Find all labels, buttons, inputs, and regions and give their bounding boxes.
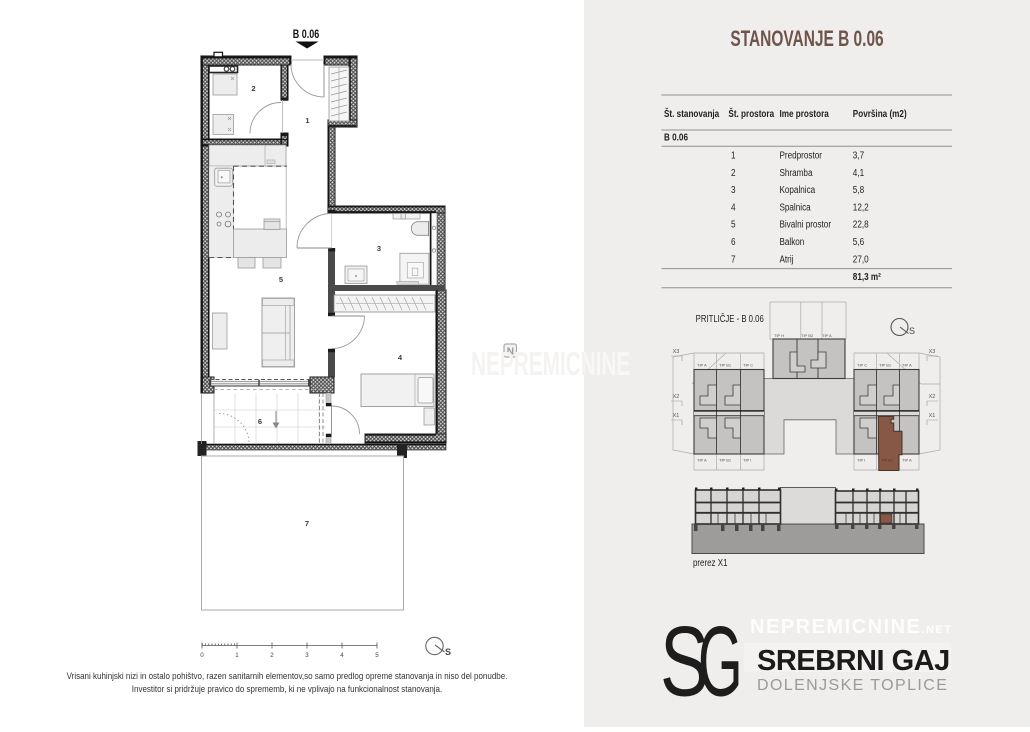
- svg-text:X2: X2: [673, 394, 680, 400]
- svg-text:TIP C: TIP C: [743, 363, 753, 368]
- svg-text:S: S: [909, 326, 915, 336]
- svg-text:Vrisani kuhinjski nizi in osta: Vrisani kuhinjski nizi in ostalo pohištv…: [67, 671, 508, 681]
- svg-text:3,7: 3,7: [853, 150, 864, 161]
- svg-text:TIP A: TIP A: [902, 458, 912, 463]
- svg-text:2: 2: [270, 652, 274, 659]
- svg-text:TIP A: TIP A: [902, 363, 912, 368]
- svg-text:Atrij: Atrij: [779, 254, 793, 265]
- svg-text:1: 1: [731, 150, 736, 161]
- svg-text:G: G: [698, 606, 743, 717]
- svg-text:6: 6: [731, 236, 736, 247]
- svg-text:TIP A: TIP A: [822, 333, 832, 338]
- svg-text:TIP H: TIP H: [774, 333, 784, 338]
- svg-text:Bivalni prostor: Bivalni prostor: [779, 219, 831, 230]
- svg-text:PRITLIČJE - B 0.06: PRITLIČJE - B 0.06: [696, 313, 764, 324]
- svg-text:TIP B1: TIP B1: [881, 458, 894, 463]
- svg-text:X3: X3: [673, 349, 680, 355]
- svg-text:Predprostor: Predprostor: [779, 150, 822, 161]
- svg-text:27,0: 27,0: [853, 254, 869, 265]
- svg-text:DOLENJSKE TOPLICE: DOLENJSKE TOPLICE: [757, 677, 948, 694]
- svg-text:2: 2: [731, 167, 736, 178]
- svg-text:X2: X2: [929, 394, 936, 400]
- svg-text:Shramba: Shramba: [779, 167, 813, 178]
- svg-text:3: 3: [377, 244, 381, 253]
- svg-text:7: 7: [305, 519, 309, 528]
- svg-text:TIP A: TIP A: [697, 458, 707, 463]
- svg-text:1: 1: [305, 116, 309, 125]
- svg-text:STANOVANJE B 0.06: STANOVANJE B 0.06: [730, 27, 884, 51]
- svg-text:Ime prostora: Ime prostora: [779, 108, 829, 119]
- svg-text:5: 5: [731, 219, 736, 230]
- svg-text:5,6: 5,6: [853, 236, 864, 247]
- svg-text:Št. stanovanja: Št. stanovanja: [664, 107, 720, 119]
- svg-text:Kopalnica: Kopalnica: [779, 184, 816, 195]
- svg-text:X1: X1: [929, 413, 936, 419]
- svg-text:4: 4: [731, 202, 736, 213]
- svg-text:TIP B1: TIP B1: [879, 363, 892, 368]
- svg-text:prerez X1: prerez X1: [693, 557, 728, 568]
- svg-text:0: 0: [200, 652, 204, 659]
- svg-text:4,1: 4,1: [853, 167, 864, 178]
- svg-text:7: 7: [731, 254, 736, 265]
- svg-text:3: 3: [305, 652, 309, 659]
- svg-text:5: 5: [279, 275, 283, 284]
- svg-text:2: 2: [251, 84, 255, 93]
- svg-text:4: 4: [340, 652, 344, 659]
- svg-text:81,3 m²: 81,3 m²: [853, 271, 881, 282]
- svg-text:3: 3: [731, 184, 736, 195]
- svg-text:Balkon: Balkon: [779, 236, 804, 247]
- svg-text:B 0.06: B 0.06: [664, 132, 688, 143]
- svg-text:5,8: 5,8: [853, 184, 864, 195]
- svg-text:TIP B1: TIP B1: [719, 363, 732, 368]
- svg-text:5: 5: [375, 652, 379, 659]
- svg-text:TIP B1: TIP B1: [719, 458, 732, 463]
- svg-text:S: S: [445, 647, 451, 657]
- svg-text:TIP I: TIP I: [857, 458, 865, 463]
- svg-text:1: 1: [235, 652, 239, 659]
- svg-text:TIP C: TIP C: [857, 363, 867, 368]
- svg-text:TIP B2: TIP B2: [801, 333, 814, 338]
- svg-text:Spalnica: Spalnica: [779, 202, 811, 213]
- svg-text:B 0.06: B 0.06: [293, 29, 320, 41]
- svg-text:TIP I: TIP I: [743, 458, 751, 463]
- svg-text:22,8: 22,8: [853, 219, 869, 230]
- svg-text:TIP A: TIP A: [697, 363, 707, 368]
- svg-text:Površina (m2): Površina (m2): [853, 108, 907, 119]
- svg-text:6: 6: [258, 417, 262, 426]
- svg-text:X3: X3: [929, 349, 936, 355]
- svg-text:Št. prostora: Št. prostora: [728, 107, 774, 119]
- svg-text:SREBRNI GAJ: SREBRNI GAJ: [757, 645, 950, 677]
- svg-text:12,2: 12,2: [853, 202, 869, 213]
- svg-text:Investitor si pridržuje pravic: Investitor si pridržuje pravico do sprem…: [132, 684, 442, 694]
- svg-text:X1: X1: [673, 413, 680, 419]
